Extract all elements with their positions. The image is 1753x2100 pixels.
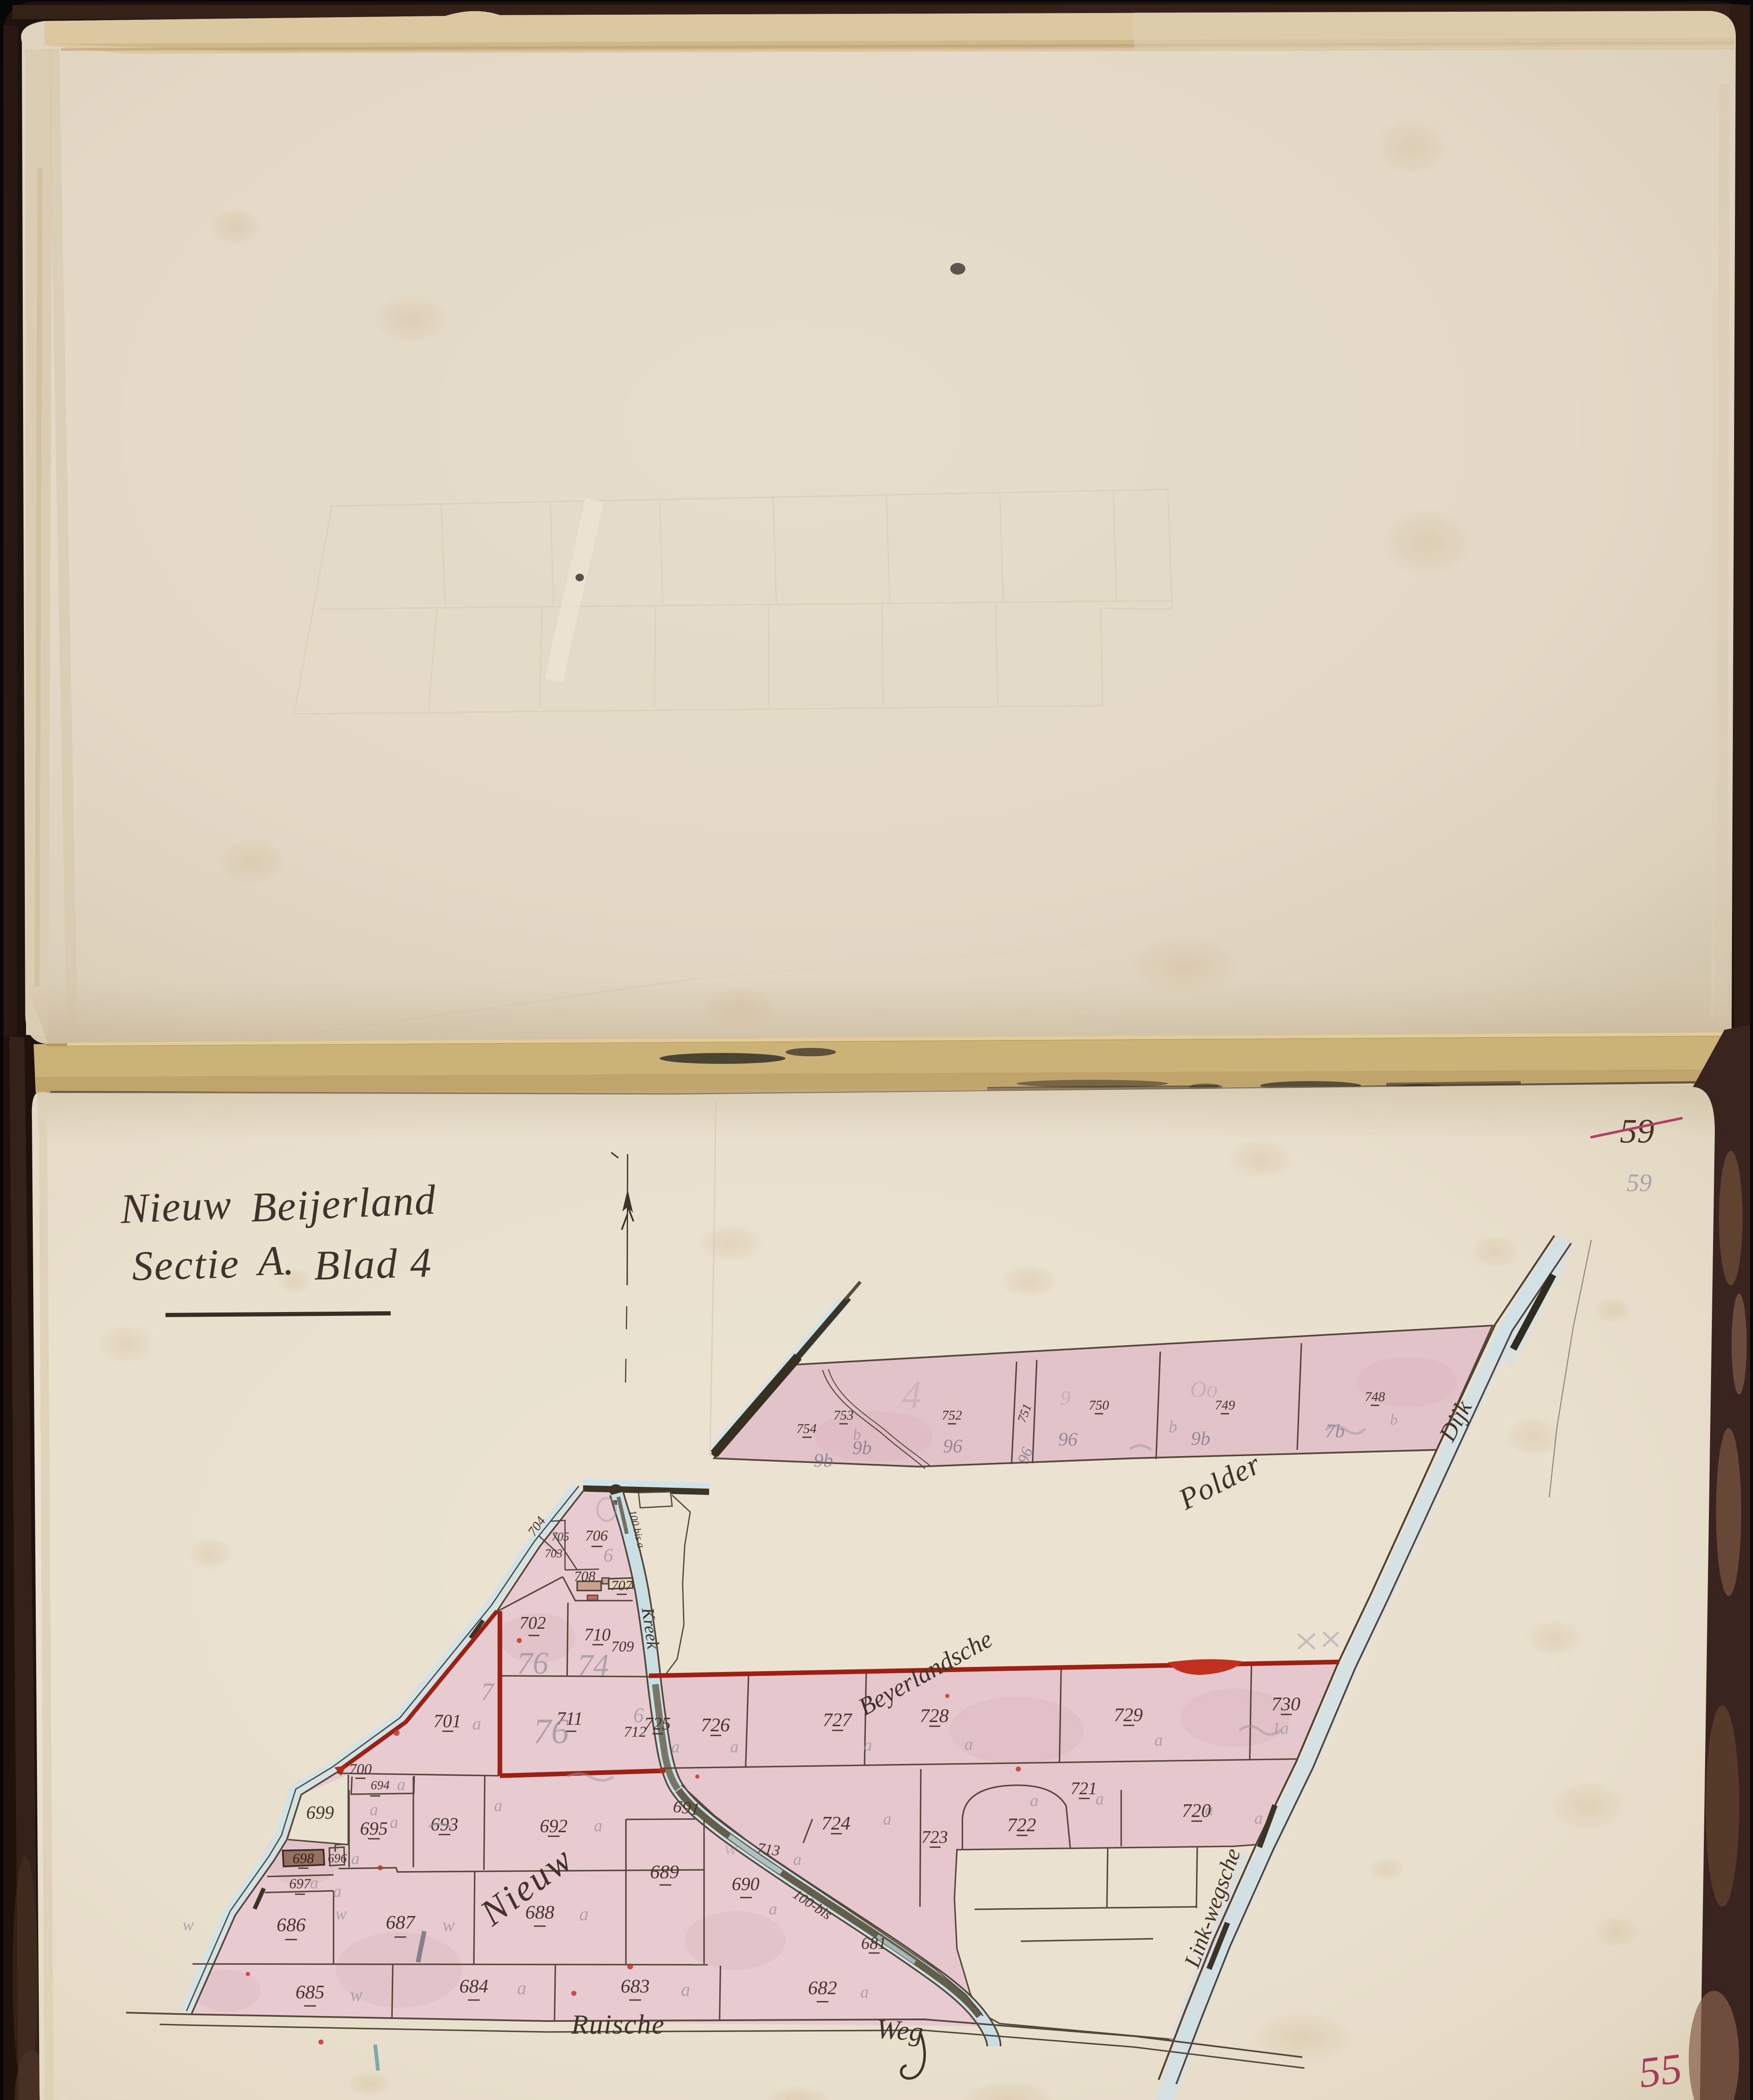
svg-text:A.: A.: [255, 1237, 295, 1284]
svg-text:753: 753: [833, 1407, 854, 1423]
svg-text:703: 703: [545, 1547, 562, 1560]
svg-text:724: 724: [822, 1812, 851, 1834]
svg-text:4: 4: [902, 1373, 921, 1416]
svg-text:688: 688: [526, 1901, 555, 1923]
svg-text:7: 7: [481, 1678, 495, 1706]
svg-text:a: a: [681, 1979, 690, 2000]
svg-text:689: 689: [650, 1861, 679, 1882]
svg-text:59: 59: [1627, 1169, 1652, 1197]
svg-text:749: 749: [1215, 1397, 1235, 1412]
svg-text:9: 9: [1060, 1387, 1070, 1409]
svg-text:76: 76: [517, 1646, 549, 1681]
svg-text:687: 687: [386, 1911, 416, 1933]
svg-text:750: 750: [1089, 1397, 1109, 1412]
svg-text:691: 691: [672, 1797, 701, 1819]
svg-text:a: a: [1096, 1789, 1104, 1808]
svg-text:721: 721: [1071, 1779, 1097, 1798]
svg-text:727: 727: [823, 1709, 853, 1730]
svg-text:a: a: [517, 1978, 526, 1998]
svg-text:710: 710: [584, 1625, 611, 1645]
svg-text:a: a: [473, 1714, 481, 1734]
svg-text:694: 694: [371, 1778, 390, 1792]
svg-text:748: 748: [1365, 1389, 1385, 1404]
svg-text:Nieuw: Nieuw: [119, 1181, 233, 1233]
svg-text:96: 96: [1058, 1428, 1078, 1450]
svg-text:725: 725: [644, 1714, 671, 1734]
svg-text:a: a: [333, 1882, 342, 1900]
svg-text:696: 696: [328, 1851, 347, 1865]
svg-text:w: w: [442, 1915, 455, 1935]
svg-text:9b: 9b: [814, 1449, 833, 1471]
svg-text:a: a: [860, 1982, 869, 2001]
svg-text:74: 74: [578, 1648, 609, 1683]
svg-text:690: 690: [732, 1874, 760, 1894]
svg-text:695: 695: [360, 1818, 388, 1839]
svg-text:Ruische: Ruische: [571, 2009, 665, 2040]
svg-text:b: b: [1390, 1411, 1398, 1428]
svg-text:722: 722: [1007, 1814, 1036, 1835]
svg-text:Blad 4: Blad 4: [313, 1239, 433, 1289]
svg-text:a: a: [1254, 1809, 1263, 1827]
svg-text:685: 685: [296, 1981, 325, 2003]
svg-text:705: 705: [552, 1530, 569, 1543]
svg-text:a: a: [730, 1737, 739, 1756]
svg-text:701: 701: [434, 1711, 461, 1731]
svg-text:699: 699: [306, 1802, 334, 1823]
svg-text:692: 692: [540, 1816, 568, 1836]
svg-text:754: 754: [796, 1421, 817, 1436]
svg-text:a: a: [769, 1899, 777, 1918]
svg-text:76: 76: [534, 1711, 570, 1751]
svg-text:a: a: [494, 1796, 502, 1815]
svg-text:7b: 7b: [1325, 1420, 1345, 1441]
svg-text:698: 698: [293, 1851, 314, 1866]
svg-text:713: 713: [756, 1840, 781, 1859]
svg-text:729: 729: [1114, 1704, 1143, 1725]
svg-text:a: a: [965, 1735, 973, 1753]
svg-text:6: 6: [604, 1544, 613, 1566]
svg-text:a: a: [397, 1775, 405, 1794]
svg-text:w: w: [183, 1915, 194, 1934]
svg-text:708: 708: [574, 1569, 596, 1584]
svg-text:709: 709: [611, 1638, 634, 1655]
svg-text:684: 684: [460, 1975, 489, 1997]
svg-text:752: 752: [942, 1407, 962, 1423]
svg-text:a: a: [1205, 1800, 1213, 1819]
svg-text:a: a: [370, 1800, 378, 1819]
svg-text:682: 682: [808, 1977, 837, 1998]
svg-text:9b: 9b: [1191, 1428, 1210, 1449]
svg-text:726: 726: [701, 1714, 730, 1735]
svg-text:683: 683: [621, 1975, 650, 1997]
svg-text:706: 706: [585, 1527, 608, 1544]
svg-text:6: 6: [633, 1703, 644, 1727]
svg-text:697: 697: [289, 1876, 312, 1892]
svg-text:b: b: [853, 1426, 861, 1444]
svg-text:Sectie: Sectie: [131, 1240, 241, 1289]
svg-text:w: w: [725, 1837, 738, 1859]
svg-text:700: 700: [349, 1761, 372, 1777]
svg-text:728: 728: [920, 1705, 949, 1726]
svg-text:702: 702: [520, 1614, 546, 1633]
svg-text:96: 96: [943, 1435, 962, 1457]
svg-text:a: a: [594, 1816, 602, 1835]
svg-text:a: a: [793, 1850, 802, 1869]
svg-text:a: a: [310, 1873, 318, 1892]
svg-text:w: w: [350, 1984, 363, 2005]
svg-text:a: a: [579, 1904, 589, 1924]
svg-text:a: a: [351, 1849, 360, 1868]
svg-text:b: b: [1169, 1417, 1177, 1436]
svg-text:Beijerland: Beijerland: [250, 1176, 437, 1231]
svg-text:686: 686: [277, 1914, 306, 1935]
svg-text:723: 723: [922, 1828, 948, 1847]
svg-text:a: a: [671, 1737, 680, 1756]
svg-text:a: a: [1030, 1791, 1038, 1810]
svg-text:a: a: [390, 1813, 398, 1832]
svg-text:55: 55: [1636, 2045, 1685, 2097]
svg-text:a: a: [864, 1735, 872, 1754]
svg-text:Weg: Weg: [875, 2013, 924, 2047]
svg-text:707: 707: [611, 1578, 633, 1593]
svg-text:a: a: [883, 1809, 891, 1828]
svg-text:w: w: [336, 1904, 347, 1923]
svg-text:730: 730: [1272, 1693, 1301, 1714]
svg-text:681: 681: [861, 1934, 886, 1953]
svg-text:a: a: [1154, 1730, 1163, 1749]
svg-text:Oo: Oo: [1190, 1377, 1218, 1402]
